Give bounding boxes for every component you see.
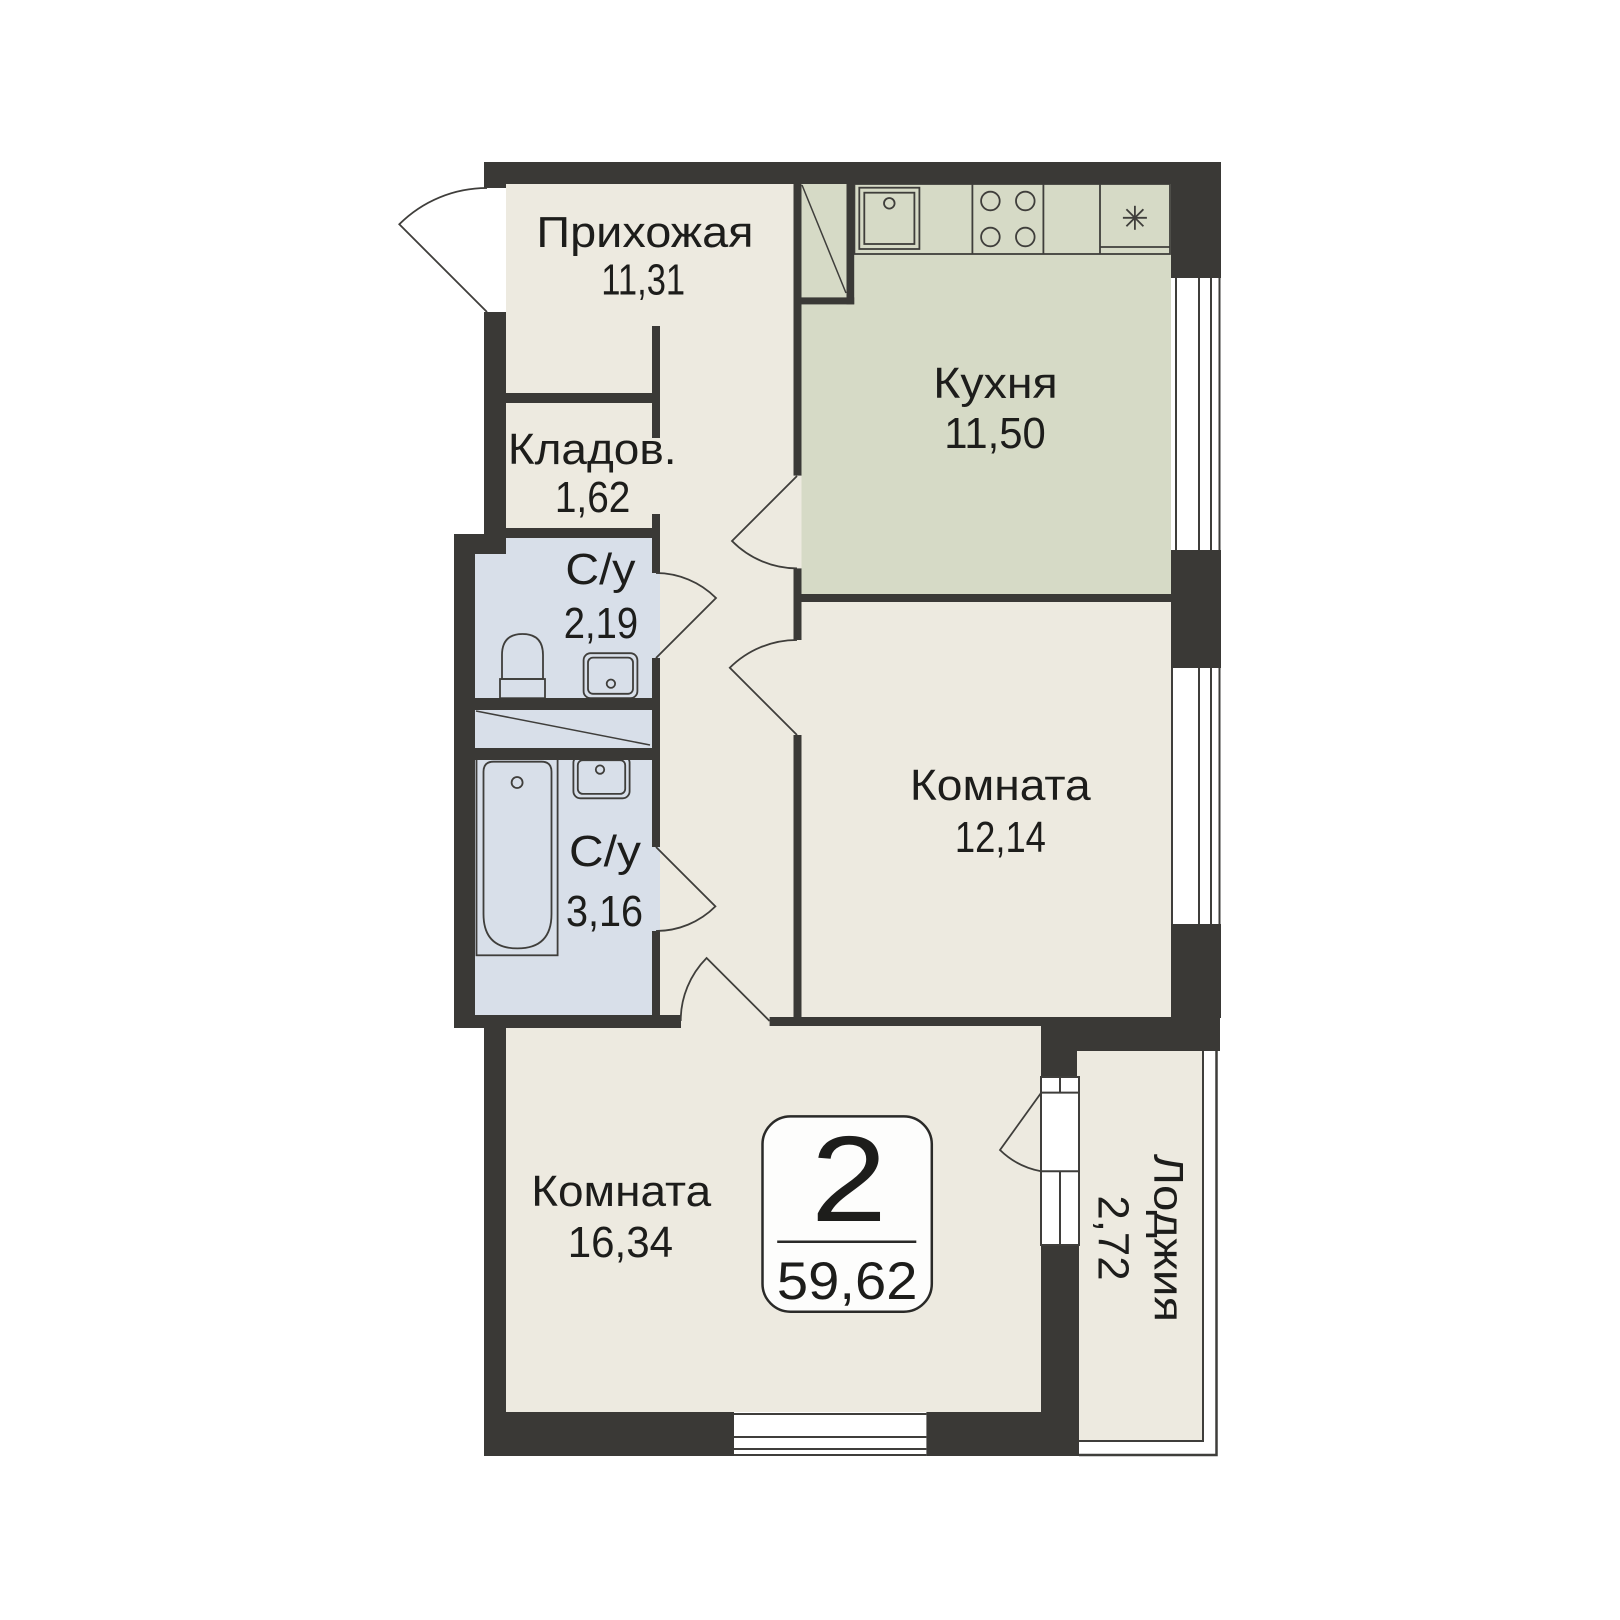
svg-text:Кладов.: Кладов. — [508, 425, 677, 474]
svg-text:С/у: С/у — [569, 827, 641, 876]
svg-text:Комната: Комната — [910, 761, 1091, 810]
svg-text:2: 2 — [811, 1111, 887, 1247]
svg-text:3,16: 3,16 — [566, 887, 643, 936]
svg-text:Лоджия: Лоджия — [1146, 1154, 1193, 1322]
svg-text:16,34: 16,34 — [568, 1218, 673, 1267]
svg-text:2,19: 2,19 — [564, 599, 638, 648]
svg-text:Комната: Комната — [531, 1167, 711, 1216]
svg-text:1,62: 1,62 — [555, 473, 631, 522]
svg-text:Кухня: Кухня — [933, 359, 1057, 408]
svg-text:2,72: 2,72 — [1089, 1195, 1138, 1280]
svg-text:12,14: 12,14 — [955, 813, 1046, 862]
svg-text:59,62: 59,62 — [777, 1252, 918, 1311]
svg-text:С/у: С/у — [565, 545, 635, 594]
svg-text:Прихожая: Прихожая — [536, 208, 753, 257]
svg-text:11,31: 11,31 — [601, 256, 685, 305]
svg-text:11,50: 11,50 — [944, 409, 1046, 458]
